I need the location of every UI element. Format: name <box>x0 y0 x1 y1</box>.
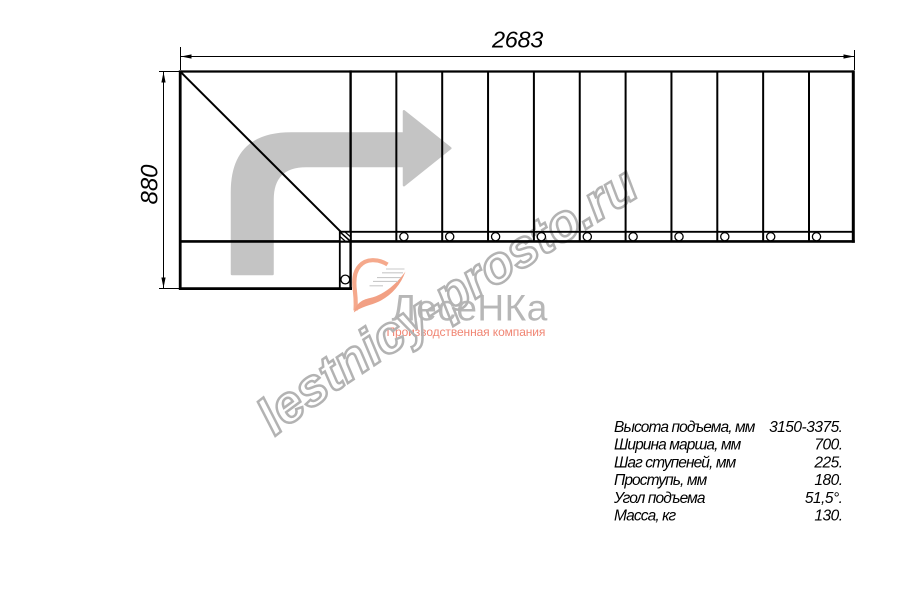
svg-text:lestnicy-prosto.ru: lestnicy-prosto.ru <box>246 156 647 446</box>
svg-text:Ширина марша, мм: Ширина марша, мм <box>614 437 742 454</box>
svg-text:2683: 2683 <box>491 27 543 53</box>
svg-text:180.: 180. <box>814 472 842 489</box>
svg-text:225.: 225. <box>813 454 842 471</box>
svg-text:Шаг ступеней, мм: Шаг ступеней, мм <box>614 454 737 471</box>
svg-text:Масса, кг: Масса, кг <box>614 508 677 525</box>
svg-text:130.: 130. <box>814 508 842 525</box>
svg-text:51,5°.: 51,5°. <box>805 490 843 507</box>
svg-text:880: 880 <box>137 164 164 205</box>
svg-text:3150-3375.: 3150-3375. <box>769 419 842 436</box>
svg-text:Высота подъема, мм: Высота подъема, мм <box>614 419 756 436</box>
svg-text:Угол подъема: Угол подъема <box>613 490 706 507</box>
svg-text:700.: 700. <box>814 437 842 454</box>
svg-text:Проступь, мм: Проступь, мм <box>614 472 708 489</box>
